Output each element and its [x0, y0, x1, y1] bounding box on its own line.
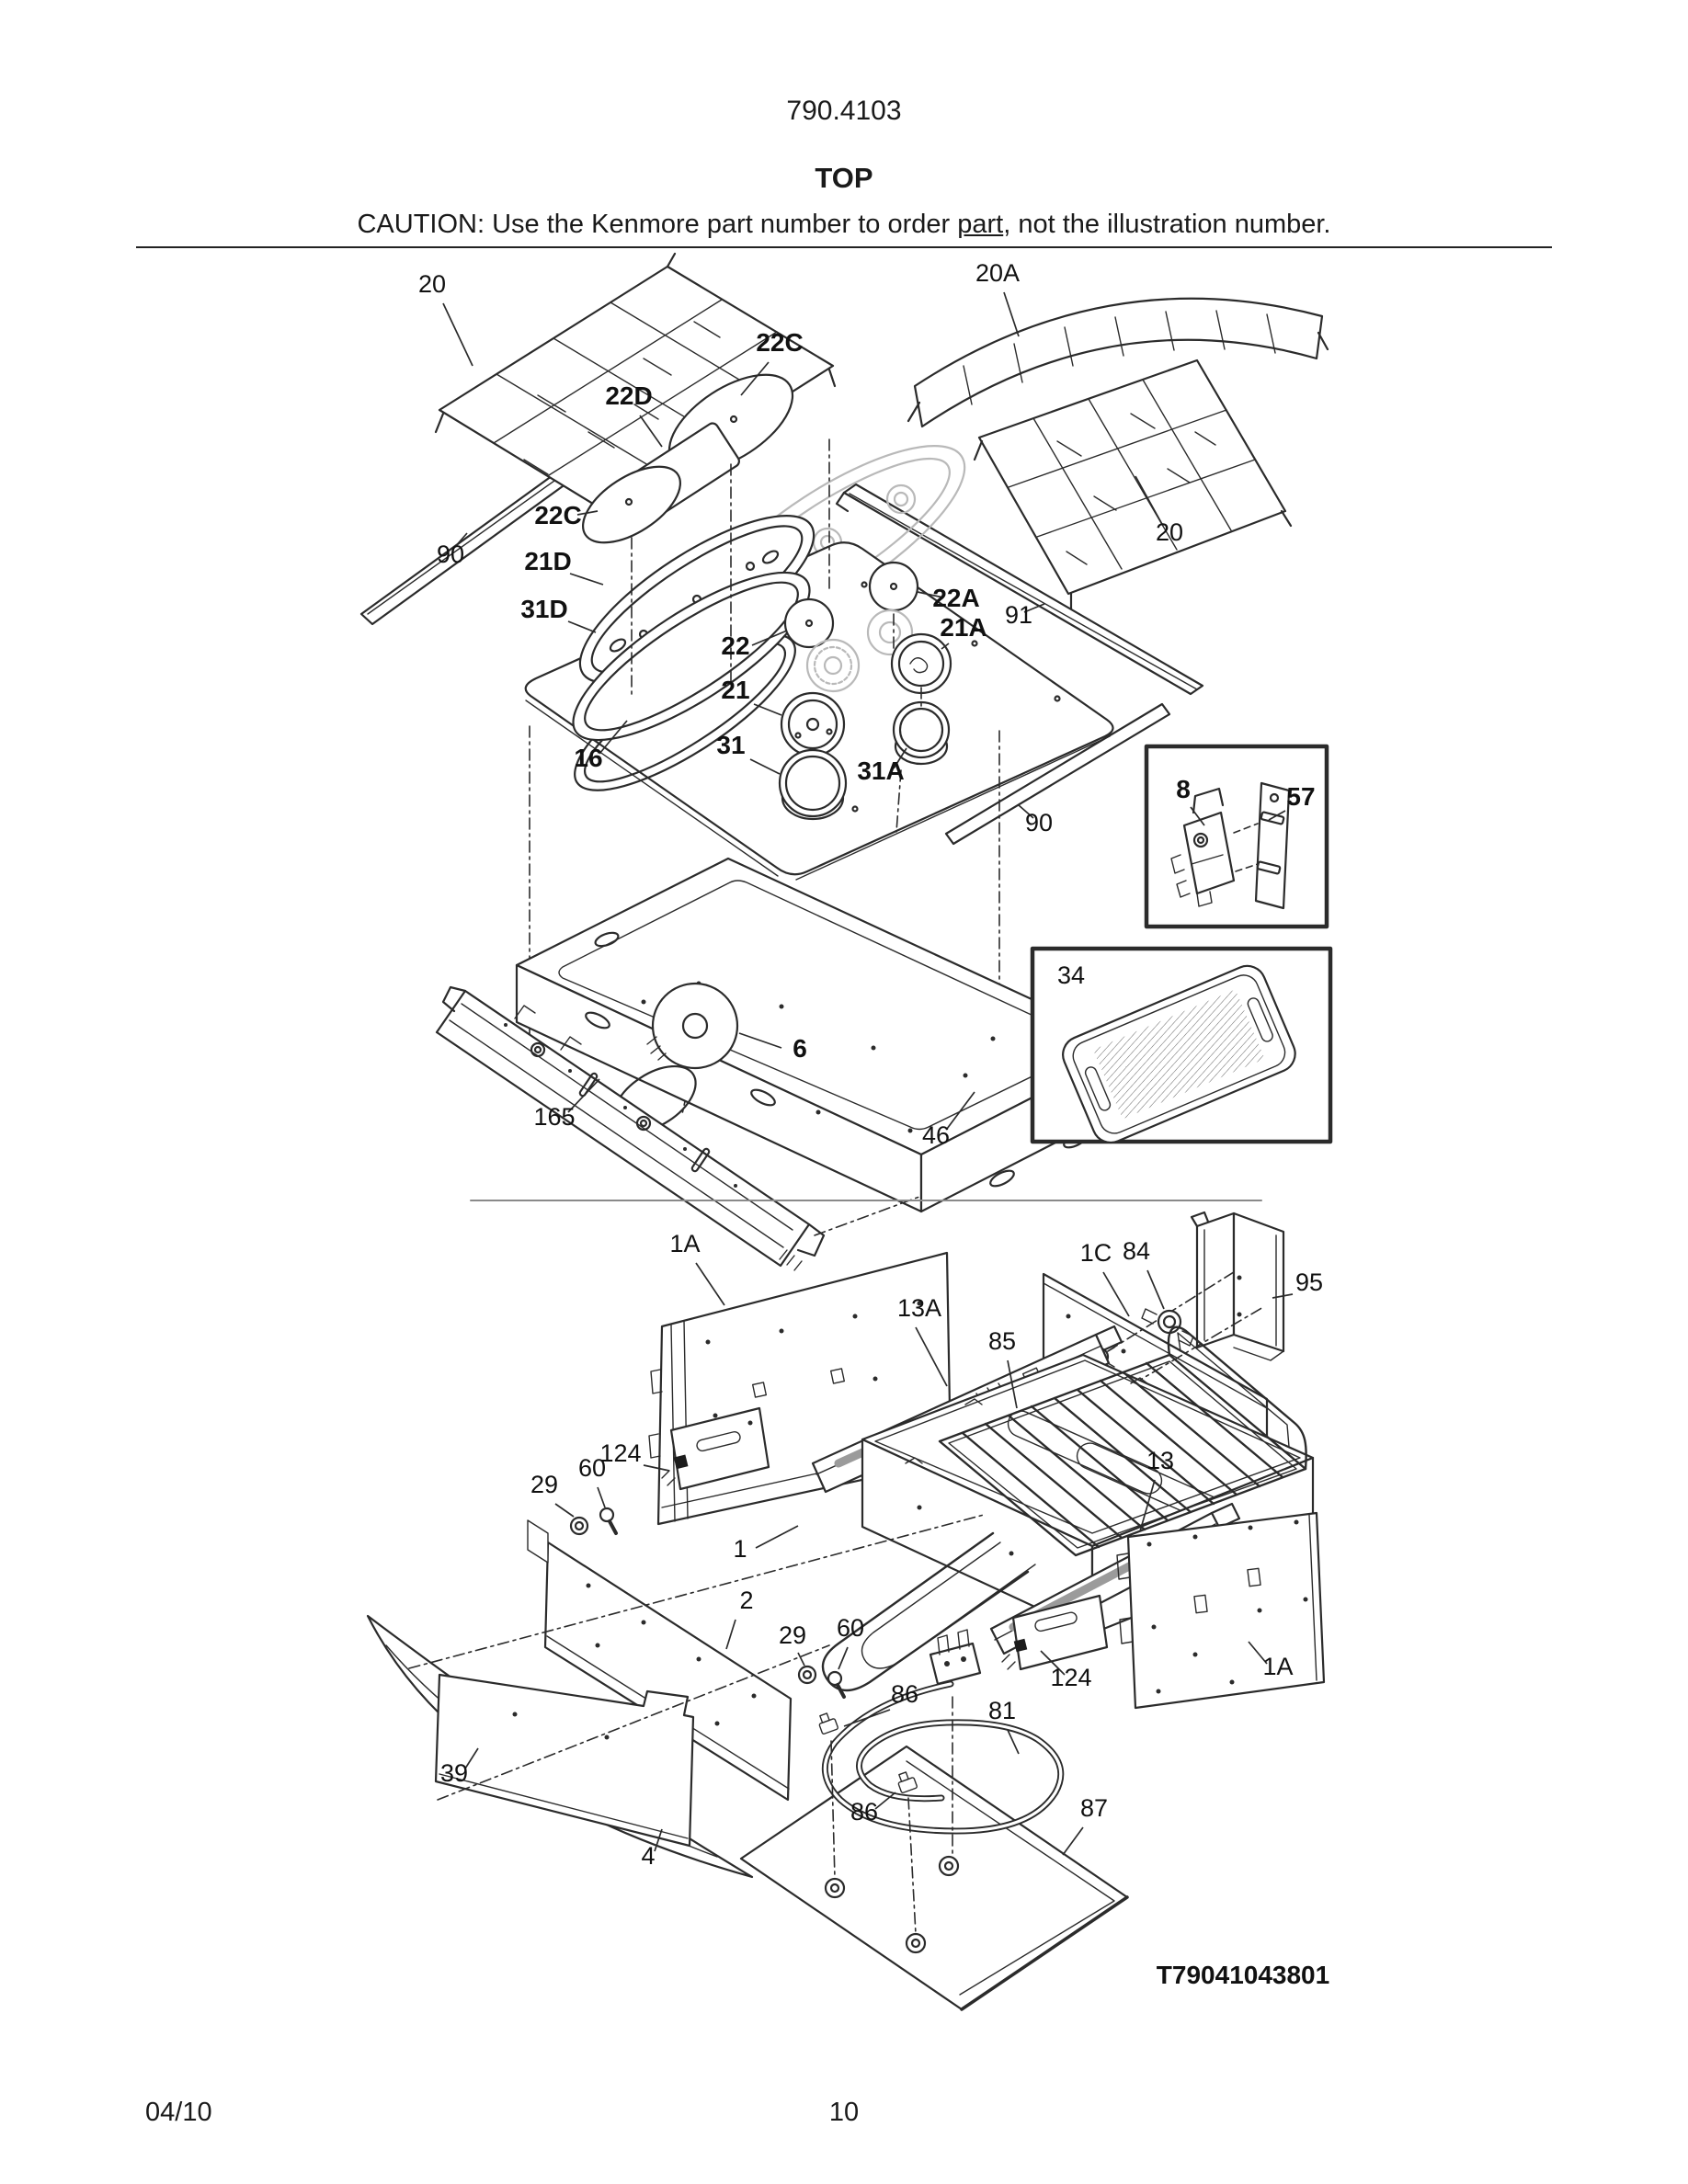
callout-13A: 13A	[897, 1294, 941, 1322]
callout-22: 22	[721, 631, 749, 660]
callout-leader-2	[726, 1620, 736, 1649]
callout-86: 86	[850, 1798, 878, 1826]
footer-page-number: 10	[0, 2098, 1688, 2128]
callout-20A: 20A	[975, 259, 1020, 287]
callout-39: 39	[440, 1759, 468, 1787]
callout-31A: 31A	[857, 756, 904, 785]
callout-31D: 31D	[520, 595, 567, 623]
callout-60: 60	[837, 1614, 864, 1642]
part-grommet-29-right	[799, 1666, 815, 1683]
callout-34: 34	[1057, 961, 1085, 989]
part-burner-base-21	[781, 693, 844, 756]
callout-21D: 21D	[524, 547, 571, 575]
callout-leader-29	[555, 1504, 574, 1517]
callout-leader-84	[1147, 1270, 1164, 1309]
callout-22D: 22D	[605, 381, 652, 410]
part-drawer-front-outer-4	[436, 1675, 693, 1846]
callout-13: 13	[1146, 1447, 1174, 1474]
callout-leader-81	[1008, 1730, 1019, 1754]
part-grommet-29-left	[571, 1518, 587, 1534]
callout-16: 16	[574, 744, 602, 772]
callout-85: 85	[988, 1327, 1016, 1355]
callout-20: 20	[1156, 518, 1183, 546]
callout-leader-21D	[570, 574, 603, 585]
part-screw-60-left	[600, 1508, 616, 1533]
callout-90: 90	[1025, 809, 1053, 836]
exploded-parts-diagram: 2020A2022C22D22C9021D31D2222A21A91213131…	[0, 0, 1688, 2184]
part-slide-bracket-124-right	[1002, 1596, 1107, 1669]
part-burner-cap-22A	[870, 563, 918, 610]
callout-4: 4	[641, 1842, 655, 1870]
callout-84: 84	[1123, 1237, 1150, 1265]
callout-124: 124	[599, 1439, 641, 1467]
callout-57: 57	[1286, 782, 1315, 811]
callout-60: 60	[578, 1454, 606, 1482]
callout-leader-31D	[568, 621, 596, 632]
callout-86: 86	[891, 1680, 918, 1708]
callout-1A: 1A	[1262, 1653, 1293, 1680]
callout-22C: 22C	[756, 328, 803, 357]
callout-20: 20	[418, 270, 446, 298]
callout-91: 91	[1005, 601, 1032, 629]
callout-leader-1	[756, 1526, 798, 1548]
part-duct-bracket-95	[1192, 1212, 1283, 1360]
callout-31: 31	[716, 731, 745, 759]
callout-leader-1A	[696, 1263, 724, 1305]
callout-29: 29	[530, 1471, 558, 1498]
callout-1C: 1C	[1080, 1239, 1112, 1267]
callout-81: 81	[988, 1697, 1016, 1724]
part-bottom-panel-87	[741, 1746, 1127, 2009]
part-bracket-plate-57	[1256, 783, 1289, 908]
callout-165: 165	[533, 1103, 575, 1131]
callout-leader-60	[838, 1647, 848, 1669]
callout-90: 90	[437, 540, 464, 568]
callout-21: 21	[721, 676, 749, 704]
callout-6: 6	[793, 1034, 807, 1063]
callout-1A: 1A	[669, 1230, 700, 1257]
part-screw-60-right	[828, 1672, 844, 1697]
callout-124: 124	[1050, 1664, 1091, 1691]
callout-46: 46	[922, 1121, 950, 1149]
callout-29: 29	[779, 1621, 806, 1649]
callout-leader-87	[1063, 1827, 1083, 1855]
callout-leader-20	[443, 303, 473, 366]
part-burner-base-21A	[892, 634, 951, 693]
callout-21A: 21A	[940, 613, 987, 642]
callout-95: 95	[1295, 1268, 1323, 1296]
callout-8: 8	[1176, 775, 1191, 803]
callout-T79041043801: T79041043801	[1157, 1961, 1329, 1989]
callout-87: 87	[1080, 1794, 1108, 1822]
callout-22C: 22C	[534, 501, 581, 529]
callout-2: 2	[739, 1587, 753, 1614]
callout-1: 1	[733, 1535, 747, 1563]
callout-leader-60	[598, 1487, 605, 1507]
part-burner-grate-right-20	[975, 360, 1291, 612]
callout-leader-20A	[1004, 292, 1019, 336]
callout-22A: 22A	[932, 584, 979, 612]
callout-leader-29	[798, 1653, 804, 1666]
inset-box-igniter	[1146, 746, 1327, 927]
part-clip-86-upper	[816, 1712, 838, 1735]
